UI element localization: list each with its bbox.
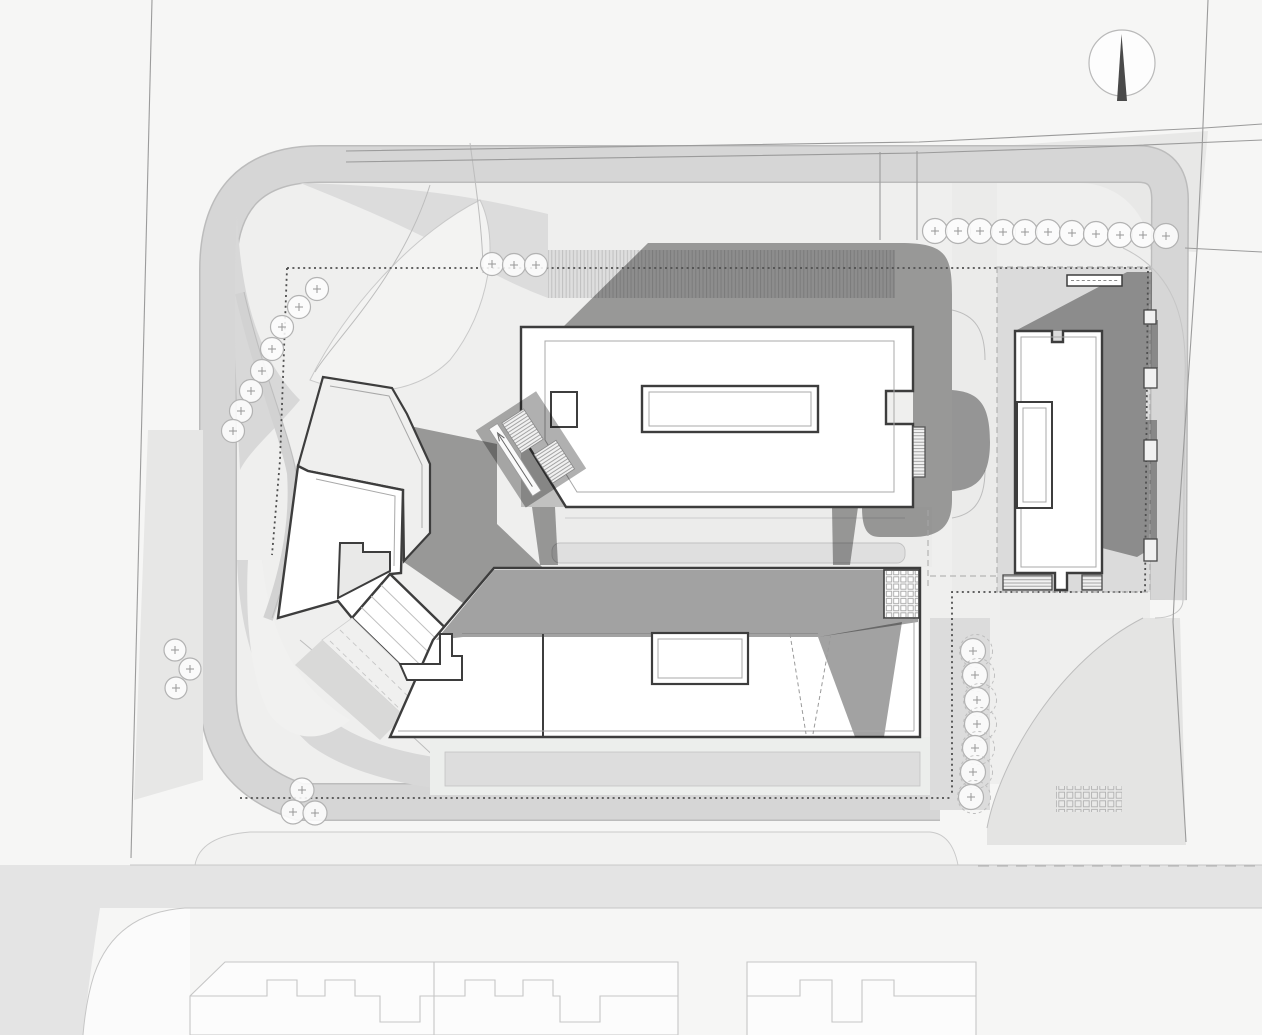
tree-icon [165,677,187,699]
street-surface [0,865,1262,908]
south-bar-roof-grid-cells [885,571,918,617]
tree-icon [525,254,548,277]
balcony-2 [1144,368,1157,388]
tree-icon [306,278,329,301]
east-slab-south-stair-west [1003,575,1052,590]
tree-icon [923,219,948,244]
tree-icon [303,801,327,825]
tree-icon [271,316,294,339]
tree-icon [503,254,526,277]
tree-icon [946,219,971,244]
tree-icon [251,360,274,383]
tree-icon [1131,223,1156,248]
neighbor-buildings [190,962,976,1035]
tree-icon [240,380,263,403]
tree-icon [991,220,1016,245]
tree-icon [261,338,284,361]
south-bar-court [652,633,748,684]
tree-icon [281,800,305,824]
tree-icon [164,639,186,661]
tree-icon [481,253,504,276]
building-north-slab [521,327,925,507]
tree-icon [290,778,314,802]
tree-icon [1013,220,1038,245]
east-parcel-south-strip [1000,592,1150,620]
balcony-1 [1144,310,1156,324]
east-slab-south-stair-east [1082,575,1102,590]
site-plan-canvas [0,0,1262,1035]
tree-icon [968,219,993,244]
south-terrace-band [445,752,920,786]
tree-icon [1060,221,1085,246]
balcony-3 [1144,440,1157,461]
tree-icon [288,296,311,319]
tree-icon [1036,220,1061,245]
tree-icon [179,658,201,680]
tree-icon [1108,223,1133,248]
parking-cells [1056,786,1122,812]
tree-icon [1084,222,1109,247]
balcony-4 [1144,539,1157,561]
tree-icon [1154,224,1179,249]
north-slab-court [642,386,818,432]
site-plan-drawing [0,0,1262,1035]
north-slab-east-stair [913,427,925,477]
south-bar-roof-shadow [436,570,918,640]
parking-grid [1056,786,1122,812]
south-sidewalk [195,832,958,865]
tree-icon [222,420,245,443]
east-court [952,183,997,592]
east-slab-court [1017,402,1052,508]
